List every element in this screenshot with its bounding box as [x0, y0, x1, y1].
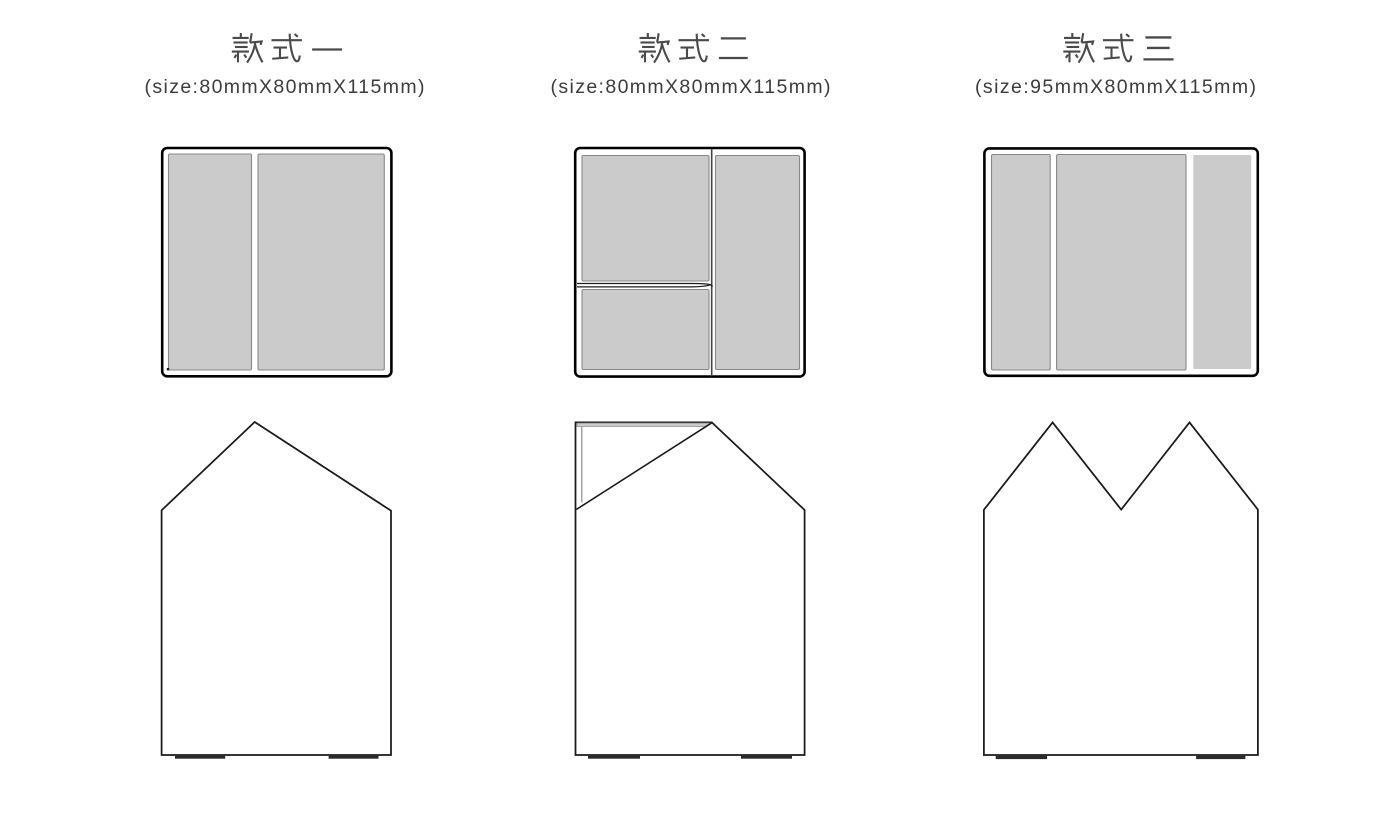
svg-text:(size:80mmX80mmX115mm): (size:80mmX80mmX115mm)	[551, 76, 831, 98]
svg-text:(size:95mmX80mmX115mm): (size:95mmX80mmX115mm)	[975, 76, 1256, 98]
svg-text:(size:80mmX80mmX115mm): (size:80mmX80mmX115mm)	[145, 76, 425, 98]
